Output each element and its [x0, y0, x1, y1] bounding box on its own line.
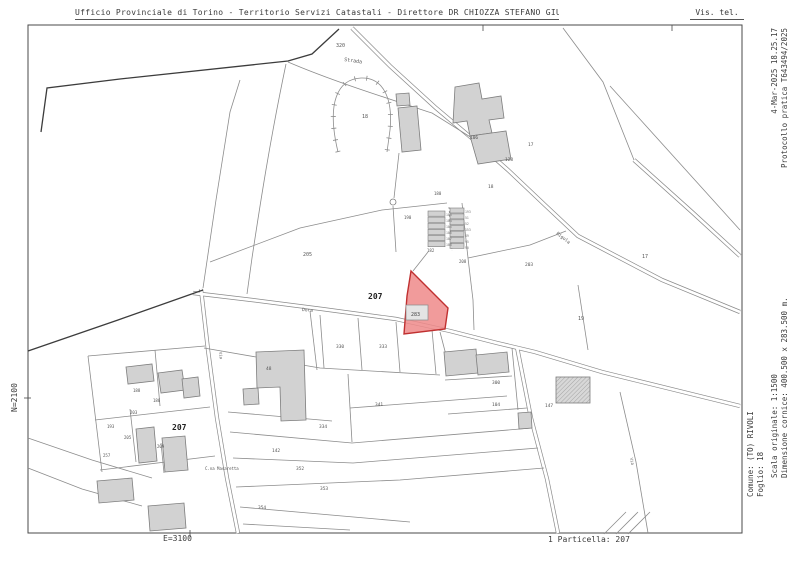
map-label: 352: [296, 466, 304, 472]
map-label: Dora: [302, 307, 314, 314]
cadastral-map[interactable]: 320Strada1810617128181718019018220820320…: [0, 0, 800, 561]
map-label: 142: [272, 448, 280, 454]
map-label: 203: [525, 262, 533, 268]
map-label: 52: [465, 222, 469, 226]
map-label: 188: [133, 388, 141, 393]
map-label: 185: [446, 225, 452, 229]
map-label: 182: [427, 248, 435, 253]
map-label: 283: [411, 312, 420, 318]
map-label: 147: [545, 403, 553, 409]
map-label: 205: [124, 435, 132, 440]
map-label: 333: [379, 344, 387, 350]
survey-point-marker: [390, 199, 396, 205]
map-label: 183: [446, 213, 452, 217]
map-label: 19: [578, 316, 584, 322]
map-label: Strada: [344, 57, 363, 65]
map-label: 190: [404, 215, 412, 220]
map-label: 17: [528, 142, 534, 148]
map-label: Rigola: [555, 231, 572, 246]
map-label: 257: [103, 453, 111, 458]
map-label: 207: [368, 292, 383, 301]
map-label: 205: [303, 252, 312, 258]
map-label: 128: [505, 157, 513, 163]
map-label: 153: [465, 228, 471, 232]
map-label: 188: [446, 243, 452, 247]
hatched-building: [556, 377, 590, 403]
map-label: 203: [130, 410, 138, 415]
map-label: 186: [153, 398, 161, 403]
map-label: 106: [470, 135, 478, 141]
map-label: 186: [446, 231, 452, 235]
map-label: 48: [266, 366, 272, 372]
map-label: 207: [172, 423, 187, 432]
map-label: 330: [336, 344, 344, 350]
map-label: C.na Masaretta: [205, 466, 239, 471]
map-label: 341: [375, 402, 383, 408]
map-label: 209: [157, 444, 165, 449]
map-label: 104: [492, 402, 500, 408]
map-label: Via: [218, 351, 224, 359]
map-label: 90: [465, 246, 469, 250]
map-label: 95: [465, 240, 469, 244]
map-label: 51: [465, 216, 469, 220]
map-label: 353: [320, 486, 328, 492]
map-label: 334: [319, 424, 327, 430]
highlighted-parcel[interactable]: [404, 271, 448, 334]
map-label: 193: [107, 424, 115, 429]
map-label: 193: [465, 210, 471, 214]
map-label: 184: [446, 219, 452, 223]
map-label: 17: [642, 254, 648, 260]
dark-boundaries: [28, 29, 339, 351]
map-label: 18: [362, 114, 368, 120]
map-label: 187: [446, 237, 452, 241]
map-label: 49: [465, 234, 469, 238]
map-label: Via: [629, 457, 636, 466]
map-label: 208: [459, 259, 467, 264]
map-label: 354: [258, 505, 266, 511]
frame-ticks: [24, 25, 672, 537]
map-label: 180: [434, 191, 442, 196]
map-label: 320: [336, 43, 345, 49]
map-label: 18: [488, 184, 494, 190]
map-label: 300: [492, 380, 500, 386]
